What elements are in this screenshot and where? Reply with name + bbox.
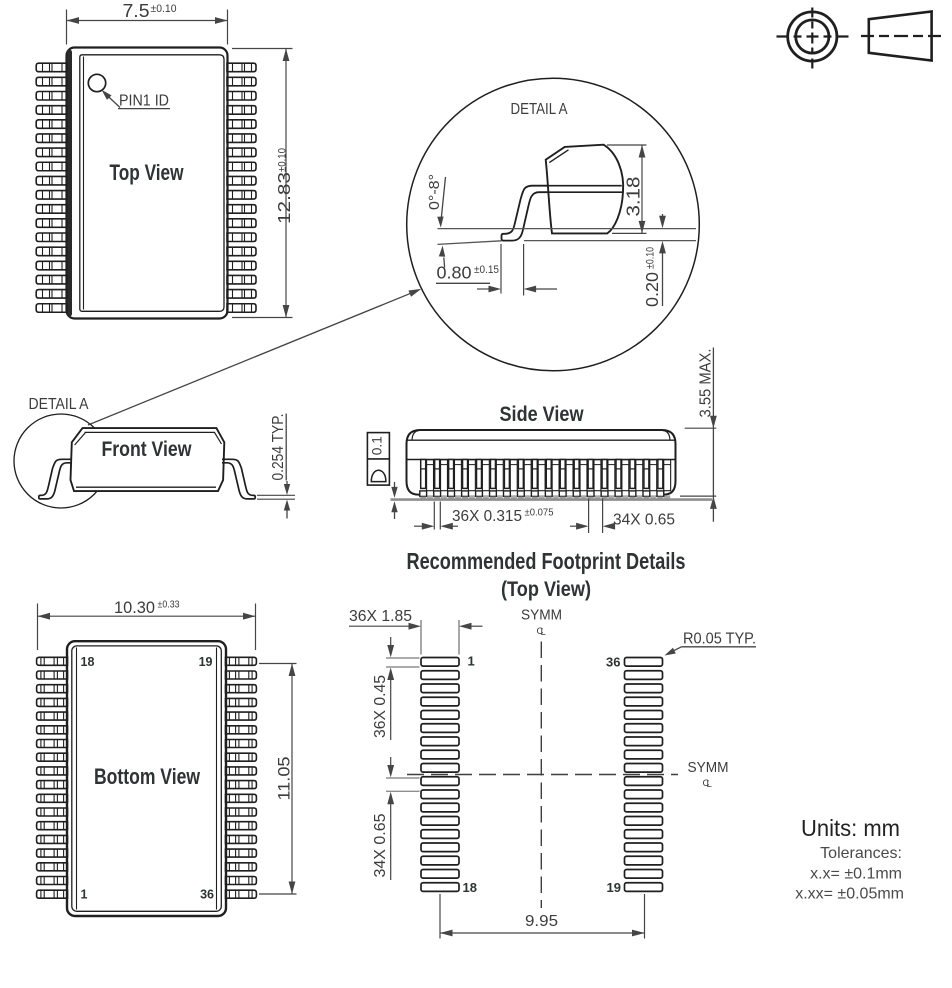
svg-text:DETAIL A: DETAIL A [29,396,90,413]
svg-text:±0.10: ±0.10 [151,3,177,15]
svg-text:3.55 MAX.: 3.55 MAX. [698,349,715,418]
svg-text:PIN1 ID: PIN1 ID [119,93,169,110]
svg-text:11.05: 11.05 [276,757,294,801]
svg-text:±0.075: ±0.075 [525,508,554,519]
svg-text:0.20: 0.20 [642,272,662,307]
svg-text:1: 1 [81,888,88,902]
svg-text:L: L [707,779,712,790]
svg-text:10.30: 10.30 [114,599,155,617]
svg-text:Bottom View: Bottom View [94,764,201,789]
svg-text:36X 0.315: 36X 0.315 [452,508,522,525]
svg-text:R0.05 TYP.: R0.05 TYP. [683,631,756,648]
svg-text:18: 18 [81,655,95,669]
svg-text:L: L [541,627,546,638]
svg-text:12.83: 12.83 [274,172,294,224]
svg-text:x.x= ±0.1mm: x.x= ±0.1mm [810,866,902,883]
svg-text:36X 0.45: 36X 0.45 [372,675,389,738]
svg-text:±0.10: ±0.10 [277,148,289,172]
svg-text:1: 1 [468,654,475,669]
svg-text:0.1: 0.1 [369,436,385,455]
svg-text:Tolerances:: Tolerances: [820,845,902,862]
svg-text:0°-8°: 0°-8° [426,174,443,210]
svg-text:0.254 TYP.: 0.254 TYP. [270,414,287,481]
svg-text:34X 0.65: 34X 0.65 [613,512,675,529]
svg-text:0.80: 0.80 [437,263,472,283]
svg-text:36X 1.85: 36X 1.85 [349,608,412,625]
svg-text:(Top View): (Top View) [501,578,591,601]
svg-text:±0.10: ±0.10 [645,247,657,269]
svg-text:19: 19 [607,880,621,895]
svg-text:±0.15: ±0.15 [474,264,499,276]
svg-text:Side View: Side View [500,403,585,426]
svg-text:7.5: 7.5 [123,1,150,21]
svg-text:Top View: Top View [110,160,185,185]
svg-text:Recommended Footprint Details: Recommended Footprint Details [407,548,686,574]
svg-text:36: 36 [200,888,214,902]
svg-text:±0.33: ±0.33 [158,599,180,611]
svg-text:DETAIL A: DETAIL A [511,101,569,118]
svg-text:SYMM: SYMM [688,759,729,776]
svg-text:34X 0.65: 34X 0.65 [372,813,389,877]
svg-text:18: 18 [463,880,477,895]
svg-text:Units: mm: Units: mm [801,815,900,841]
svg-text:Front View: Front View [102,438,193,461]
svg-text:x.xx= ±0.05mm: x.xx= ±0.05mm [795,886,904,903]
svg-text:3.18: 3.18 [624,177,644,217]
svg-text:36: 36 [606,654,620,669]
svg-text:SYMM: SYMM [521,607,562,624]
svg-text:19: 19 [199,655,213,669]
svg-text:9.95: 9.95 [525,913,558,930]
